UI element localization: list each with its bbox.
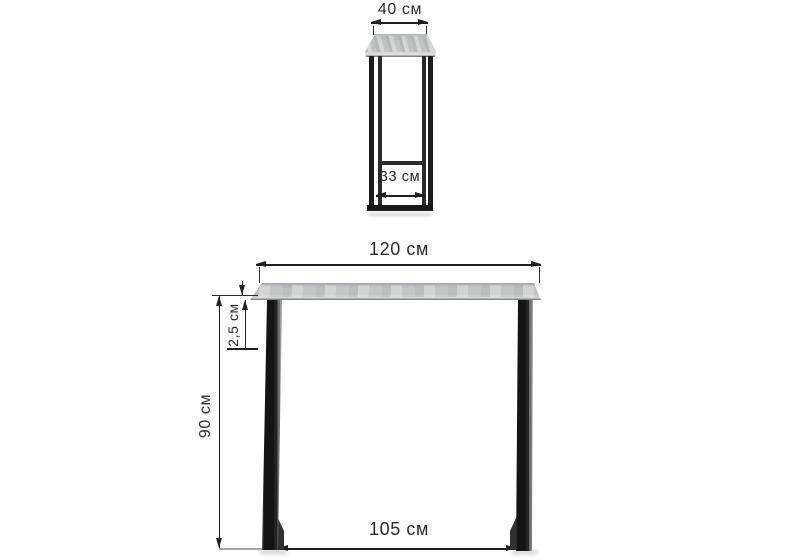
- height-dimension-arrow: [219, 296, 221, 548]
- tabletop-texture: [365, 36, 436, 52]
- width-dimension-label: 120 см: [339, 240, 459, 260]
- leg-left: [262, 300, 282, 550]
- thickness-leader-tick: [227, 348, 258, 350]
- extension-line: [539, 267, 540, 283]
- extension-line: [426, 26, 427, 35]
- thickness-lower-arrow: [245, 300, 247, 348]
- depth-dimension-label: 40 см: [360, 1, 440, 19]
- height-dimension-label: 90 см: [197, 386, 215, 446]
- floor-shadow: [368, 213, 432, 216]
- width-dimension-arrow: [256, 264, 541, 266]
- leg-span-dimension-arrow: [278, 548, 516, 550]
- leg-right: [515, 300, 533, 551]
- extension-line: [212, 295, 258, 296]
- side-view: 40 см 33 см: [340, 0, 460, 230]
- extension-line: [373, 26, 374, 35]
- inner-width-dimension-arrow: [376, 195, 425, 197]
- inner-width-dimension-label: 33 см: [368, 170, 432, 186]
- frame-bottom-rail: [367, 205, 433, 211]
- depth-dimension-arrow: [371, 22, 428, 24]
- dimension-diagram: 40 см 33 см 120 см 90 см: [0, 0, 800, 560]
- frame-crossbar: [380, 161, 425, 165]
- leg-span-dimension-label: 105 см: [339, 520, 459, 540]
- tabletop-side-view: [365, 34, 436, 57]
- thickness-upper-arrow: [242, 281, 244, 295]
- floor-extension-line: [219, 548, 263, 550]
- thickness-dimension-label: 2,5 см: [226, 298, 242, 352]
- tabletop-texture: [250, 285, 541, 297]
- front-view: 120 см 90 см 2,5 см 105 см: [180, 230, 600, 560]
- tabletop-front-view: [250, 283, 541, 300]
- extension-line: [259, 267, 260, 283]
